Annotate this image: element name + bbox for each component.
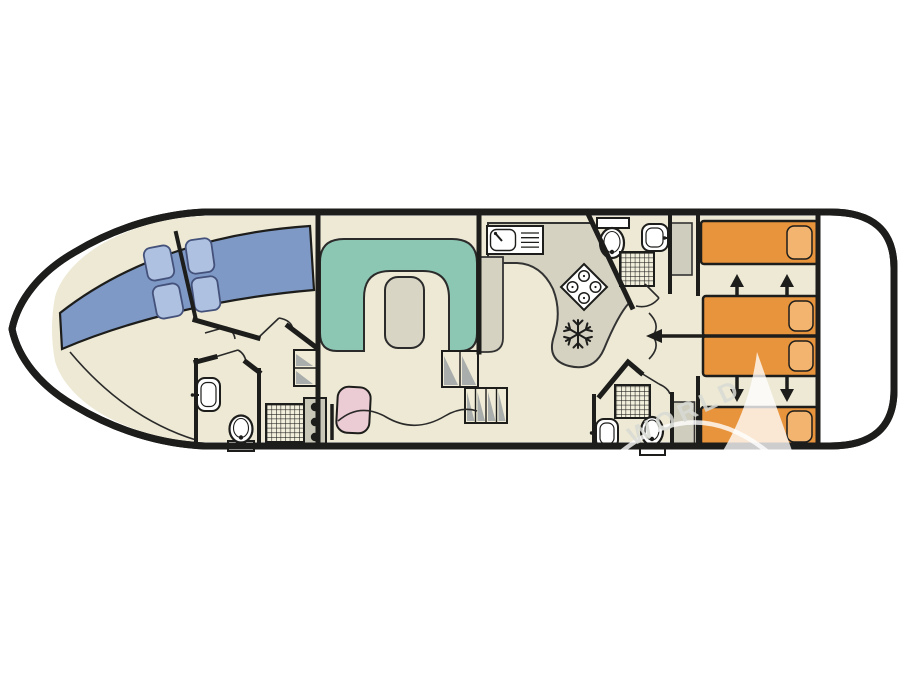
pillow bbox=[152, 282, 185, 320]
bed-pillow bbox=[789, 341, 813, 371]
floor-plan-canvas: WORLD bbox=[0, 0, 901, 676]
dining-table bbox=[385, 277, 424, 348]
galley-sideboard bbox=[479, 257, 503, 352]
wardrobe bbox=[671, 223, 692, 275]
sink-icon bbox=[642, 224, 671, 251]
boat-floor-plan: WORLD bbox=[0, 0, 901, 676]
sink-icon bbox=[487, 226, 543, 254]
bed-pillow bbox=[787, 411, 812, 442]
salon-steps-lower bbox=[465, 388, 507, 423]
bed-pillow bbox=[787, 226, 812, 259]
salon-steps-upper bbox=[442, 351, 478, 387]
bed-pillow bbox=[789, 301, 813, 331]
shower-icon bbox=[266, 404, 304, 442]
pillow bbox=[185, 237, 215, 274]
pillow bbox=[191, 275, 221, 312]
shower-icon bbox=[620, 252, 654, 286]
salon bbox=[320, 239, 477, 351]
pillow bbox=[143, 244, 176, 282]
bow-steps bbox=[294, 350, 317, 386]
